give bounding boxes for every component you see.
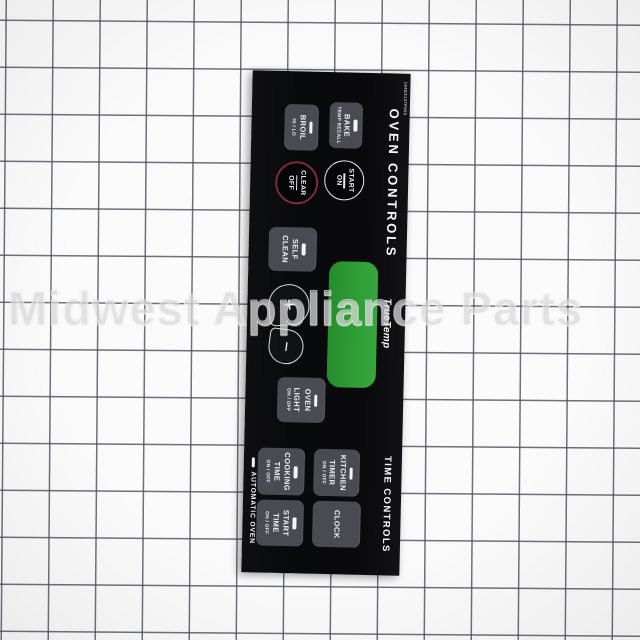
clear-sublabel: OFF: [287, 175, 295, 190]
oven-light-label-line1: OVEN: [302, 389, 311, 412]
automatic-oven-indicator-light: [252, 457, 256, 467]
bake-sublabel: TEMP RECALL: [334, 106, 340, 143]
cooking-time-button: COOKING TIME ON / OFF: [257, 447, 305, 495]
time-controls-title: TIME CONTROLS: [380, 454, 393, 554]
start-time-indicator-light: [293, 517, 297, 529]
broil-sublabel: HI / LO: [290, 118, 296, 136]
broil-button: BROIL HI / LO: [284, 104, 319, 151]
clock-button: CLOCK: [312, 501, 361, 548]
cooking-time-label-line1: COOKING: [282, 452, 291, 491]
start-time-label-line1: START: [281, 510, 290, 537]
clear-off-button: CLEAR OFF: [275, 161, 319, 205]
kitchen-timer-label-line2: TIMER: [327, 460, 336, 486]
self-clean-button: SELF CLEAN: [268, 227, 317, 272]
oven-light-label-line2: LIGHT: [292, 388, 301, 413]
kitchen-timer-sublabel: ON / OFF: [320, 461, 326, 484]
truetemp-logo: TrueTemp: [380, 278, 393, 368]
broil-indicator-light: [309, 122, 313, 134]
kitchen-timer-indicator-light: [349, 467, 353, 479]
bake-button: BAKE TEMP RECALL: [329, 102, 363, 149]
clear-divider: [296, 175, 298, 190]
display-window: [327, 261, 379, 388]
bake-indicator-light: [353, 120, 357, 132]
oven-light-indicator-light: [314, 394, 318, 406]
bake-label: BAKE: [342, 114, 351, 137]
oven-light-button: OVEN LIGHT ON / OFF: [277, 377, 326, 423]
oven-control-membrane: 164D3147P003 OVEN CONTROLS BAKE TEMP REC…: [241, 70, 410, 575]
cooking-time-indicator-light: [294, 466, 298, 478]
clock-label: CLOCK: [332, 510, 341, 539]
cooking-time-sublabel: ON / OFF: [265, 460, 271, 483]
oven-controls-title: OVEN CONTROLS: [383, 108, 401, 258]
start-on-button: START ON: [324, 160, 365, 201]
clear-label: CLEAR: [298, 170, 306, 196]
start-time-button: START TIME ON / OFF: [256, 499, 304, 546]
self-clean-label-line1: SELF: [290, 239, 299, 260]
kitchen-timer-label-line1: KITCHEN: [338, 455, 347, 491]
product-photo: 164D3147P003 OVEN CONTROLS BAKE TEMP REC…: [0, 0, 640, 640]
self-clean-label-line2: CLEAN: [280, 235, 289, 263]
cooking-time-label-line2: TIME: [272, 462, 281, 482]
start-divider: [343, 173, 345, 188]
kitchen-timer-button: KITCHEN TIMER ON / OFF: [313, 449, 360, 497]
part-number-text: 164D3147P003: [403, 82, 409, 116]
broil-label: BROIL: [297, 115, 306, 141]
self-clean-indicator-light: [302, 243, 306, 255]
plus-glyph: +: [276, 298, 301, 312]
plus-button: +: [267, 283, 311, 327]
start-time-sublabel: ON / OFF: [263, 511, 269, 534]
start-sublabel: ON: [334, 175, 342, 186]
minus-glyph: −: [275, 340, 297, 353]
minus-button: −: [266, 327, 305, 366]
oven-light-sublabel: ON / OFF: [285, 388, 291, 411]
start-time-label-line2: TIME: [271, 513, 280, 533]
start-label: START: [346, 168, 354, 192]
